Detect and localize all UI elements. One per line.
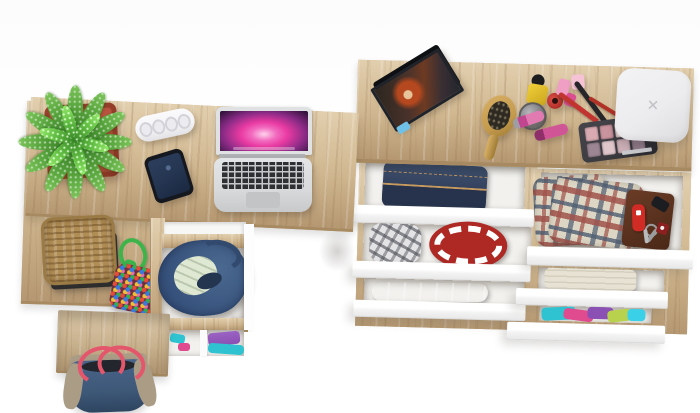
leather-wallet bbox=[621, 189, 675, 251]
beige-towel bbox=[544, 268, 637, 291]
cupboard-back-strip bbox=[164, 222, 246, 234]
gray-plaid-cap bbox=[369, 223, 422, 264]
knife-cross-icon bbox=[636, 210, 641, 215]
cupboard-lower-compartment bbox=[162, 330, 244, 356]
wicker-basket bbox=[40, 214, 117, 286]
laptop-trackpad[interactable] bbox=[246, 192, 280, 208]
dresser: ✕ bbox=[344, 60, 700, 364]
laptop bbox=[214, 107, 312, 205]
x-mark-icon: ✕ bbox=[646, 96, 660, 115]
eyeshadow-pan bbox=[586, 142, 601, 158]
laptop-dock bbox=[233, 147, 295, 150]
emblem-dot bbox=[660, 225, 665, 230]
socket bbox=[176, 112, 192, 129]
phone-screen bbox=[147, 152, 191, 200]
car-key-fob bbox=[650, 195, 670, 213]
laptop-screen bbox=[216, 107, 312, 155]
drawer-right-3-interior bbox=[539, 306, 651, 324]
cloth-teal-folded bbox=[208, 343, 245, 355]
scene: ✕ bbox=[0, 0, 700, 413]
red-polish-cap bbox=[552, 98, 558, 104]
laptop-keyboard[interactable] bbox=[222, 162, 304, 189]
eyeshadow-pan bbox=[599, 124, 614, 140]
drawer-right-1-interior bbox=[539, 173, 683, 251]
denim-tote-bag bbox=[63, 344, 155, 413]
folded-jeans bbox=[382, 161, 488, 211]
shelf-divider bbox=[200, 330, 207, 356]
cloth-cyan bbox=[627, 309, 645, 321]
drawer-left-1-interior bbox=[364, 162, 525, 211]
white-storage-box: ✕ bbox=[614, 67, 692, 143]
cloth-pink-small bbox=[178, 343, 190, 351]
cupboard-right-wall bbox=[244, 224, 254, 330]
pocket-knife bbox=[632, 204, 646, 231]
gray-trousers bbox=[372, 282, 488, 302]
plant-leaves bbox=[28, 88, 136, 196]
eyeshadow-pan bbox=[584, 126, 599, 142]
red-emblem bbox=[656, 222, 670, 236]
eyeshadow-pan bbox=[601, 140, 616, 156]
laptop-body bbox=[214, 158, 312, 212]
drawer-right-3-front[interactable] bbox=[507, 322, 665, 344]
brush-handle bbox=[483, 133, 500, 161]
